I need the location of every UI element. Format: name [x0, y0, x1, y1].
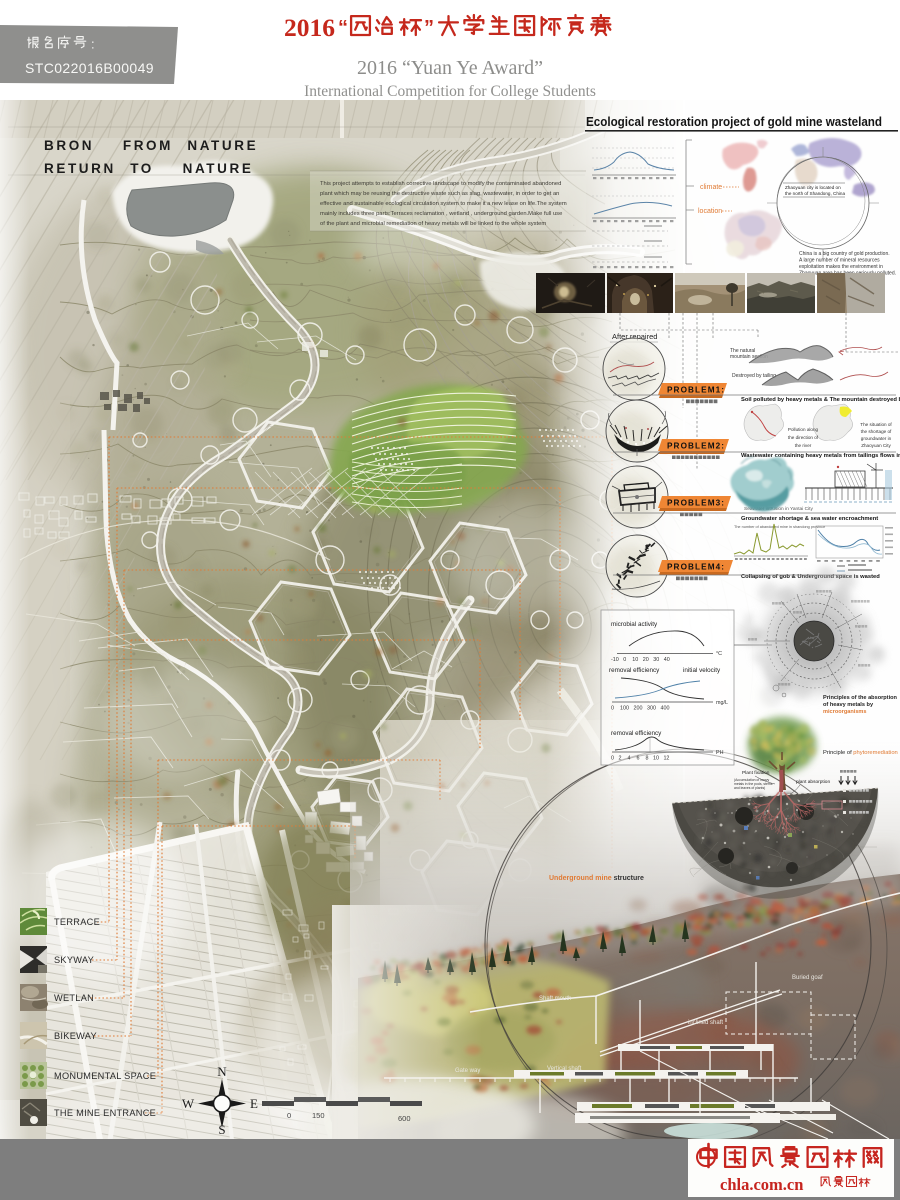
svg-text:SKYWAY: SKYWAY — [54, 955, 94, 965]
svg-text:WETLAN: WETLAN — [54, 993, 94, 1003]
svg-text:W: W — [182, 1096, 195, 1111]
svg-text:“: “ — [338, 17, 348, 39]
svg-text:of the plant and microbial rem: of the plant and microbial remediation o… — [320, 221, 546, 227]
svg-text:STC022016B00049: STC022016B00049 — [25, 60, 154, 76]
svg-text:0: 0 — [287, 1111, 291, 1120]
svg-text:2016: 2016 — [284, 13, 335, 42]
svg-text:chla.com.cn: chla.com.cn — [720, 1175, 803, 1194]
svg-text:2016 “Yuan Ye Award”: 2016 “Yuan Ye Award” — [357, 57, 543, 79]
svg-text:BIKEWAY: BIKEWAY — [54, 1031, 97, 1041]
svg-text:RETURN TO NATURE: RETURN TO NATURE — [44, 161, 253, 176]
svg-text:MONUMENTAL SPACE: MONUMENTAL SPACE — [54, 1071, 156, 1081]
svg-text:S: S — [218, 1122, 225, 1137]
svg-text:E: E — [250, 1096, 258, 1111]
svg-text:BRON FROM NATURE: BRON FROM NATURE — [44, 138, 258, 153]
svg-text:N: N — [217, 1064, 227, 1079]
svg-text:effective and sustainable ecol: effective and sustainable ecological cir… — [320, 201, 567, 207]
svg-text::: : — [91, 37, 95, 52]
svg-text:600: 600 — [398, 1114, 411, 1123]
svg-text:plant which may be reusing the: plant which may be reusing the destructi… — [320, 191, 559, 197]
svg-text:”: ” — [424, 17, 434, 39]
svg-text:International Competition for: International Competition for College St… — [304, 83, 596, 100]
svg-text:THE MINE ENTRANCE: THE MINE ENTRANCE — [54, 1108, 156, 1118]
svg-text:This project attempts to estab: This project attempts to establish corre… — [320, 181, 561, 187]
svg-text:150: 150 — [312, 1111, 325, 1120]
svg-text:mainly includes three parts:Te: mainly includes three parts:Terraces rec… — [320, 211, 562, 217]
svg-text:TERRACE: TERRACE — [54, 917, 100, 927]
